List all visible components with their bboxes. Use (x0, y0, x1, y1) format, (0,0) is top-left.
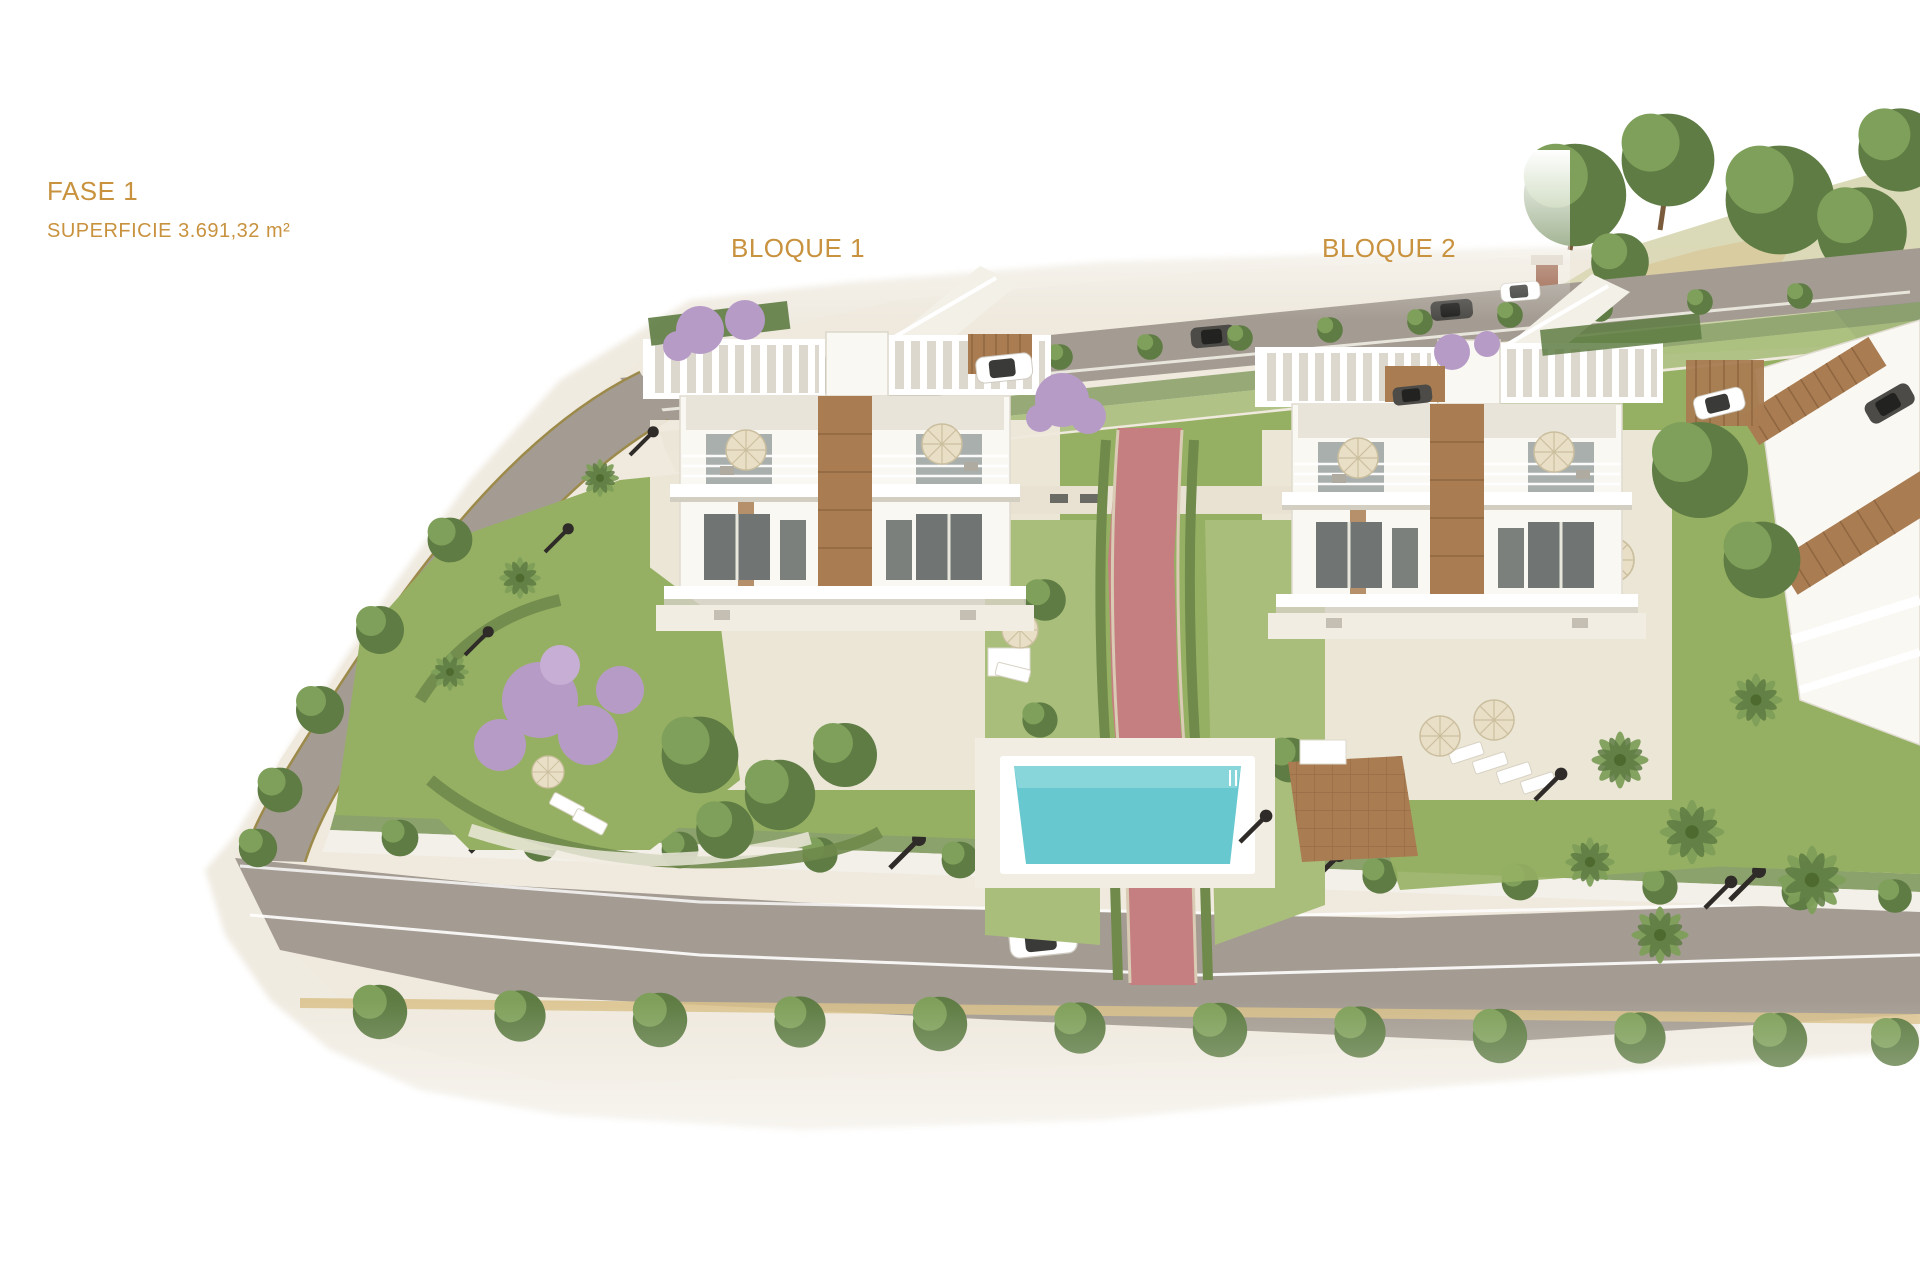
surface-area-label: SUPERFICIE 3.691,32 m² (47, 220, 290, 243)
bloque-1-label: BLOQUE 1 (731, 233, 865, 264)
lawn-umbrella (1420, 716, 1460, 756)
bench (1080, 494, 1098, 503)
parked-white-car (975, 352, 1033, 384)
shower-pad (1300, 740, 1346, 764)
bloque-2-label: BLOQUE 2 (1322, 233, 1456, 264)
pool-area (975, 738, 1275, 888)
lawn-umbrella (1474, 700, 1514, 740)
bottom-fade (0, 1000, 1920, 1280)
bench (1050, 494, 1068, 503)
garden-umbrella (532, 756, 564, 788)
central-path (1100, 428, 1208, 985)
development-aerial-render: FASE 1 SUPERFICIE 3.691,32 m² BLOQUE 1 B… (0, 0, 1920, 1280)
phase-label: FASE 1 (47, 176, 138, 207)
site-plan-scene (0, 0, 1920, 1280)
